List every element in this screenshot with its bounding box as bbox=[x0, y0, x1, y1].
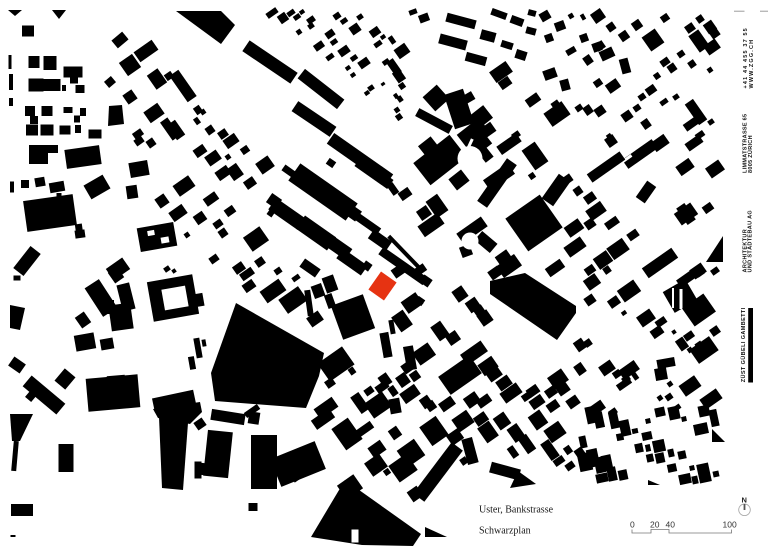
svg-text:40: 40 bbox=[666, 520, 676, 530]
svg-text:N: N bbox=[742, 496, 747, 505]
svg-text:Schwarzplan: Schwarzplan bbox=[479, 526, 531, 537]
svg-text:100: 100 bbox=[723, 520, 737, 530]
svg-text:Uster, Bankstrasse: Uster, Bankstrasse bbox=[479, 505, 554, 516]
svg-text:UND STÄDTEBAU AG: UND STÄDTEBAU AG bbox=[746, 210, 753, 273]
svg-text:0: 0 bbox=[630, 520, 635, 530]
svg-text:20: 20 bbox=[650, 520, 660, 530]
svg-text:ZÜST GÜBELI GAMBETTI: ZÜST GÜBELI GAMBETTI bbox=[740, 307, 747, 382]
svg-text:WWW.ZGG.CH: WWW.ZGG.CH bbox=[749, 39, 755, 89]
svg-text:8005 ZÜRICH: 8005 ZÜRICH bbox=[747, 135, 754, 173]
